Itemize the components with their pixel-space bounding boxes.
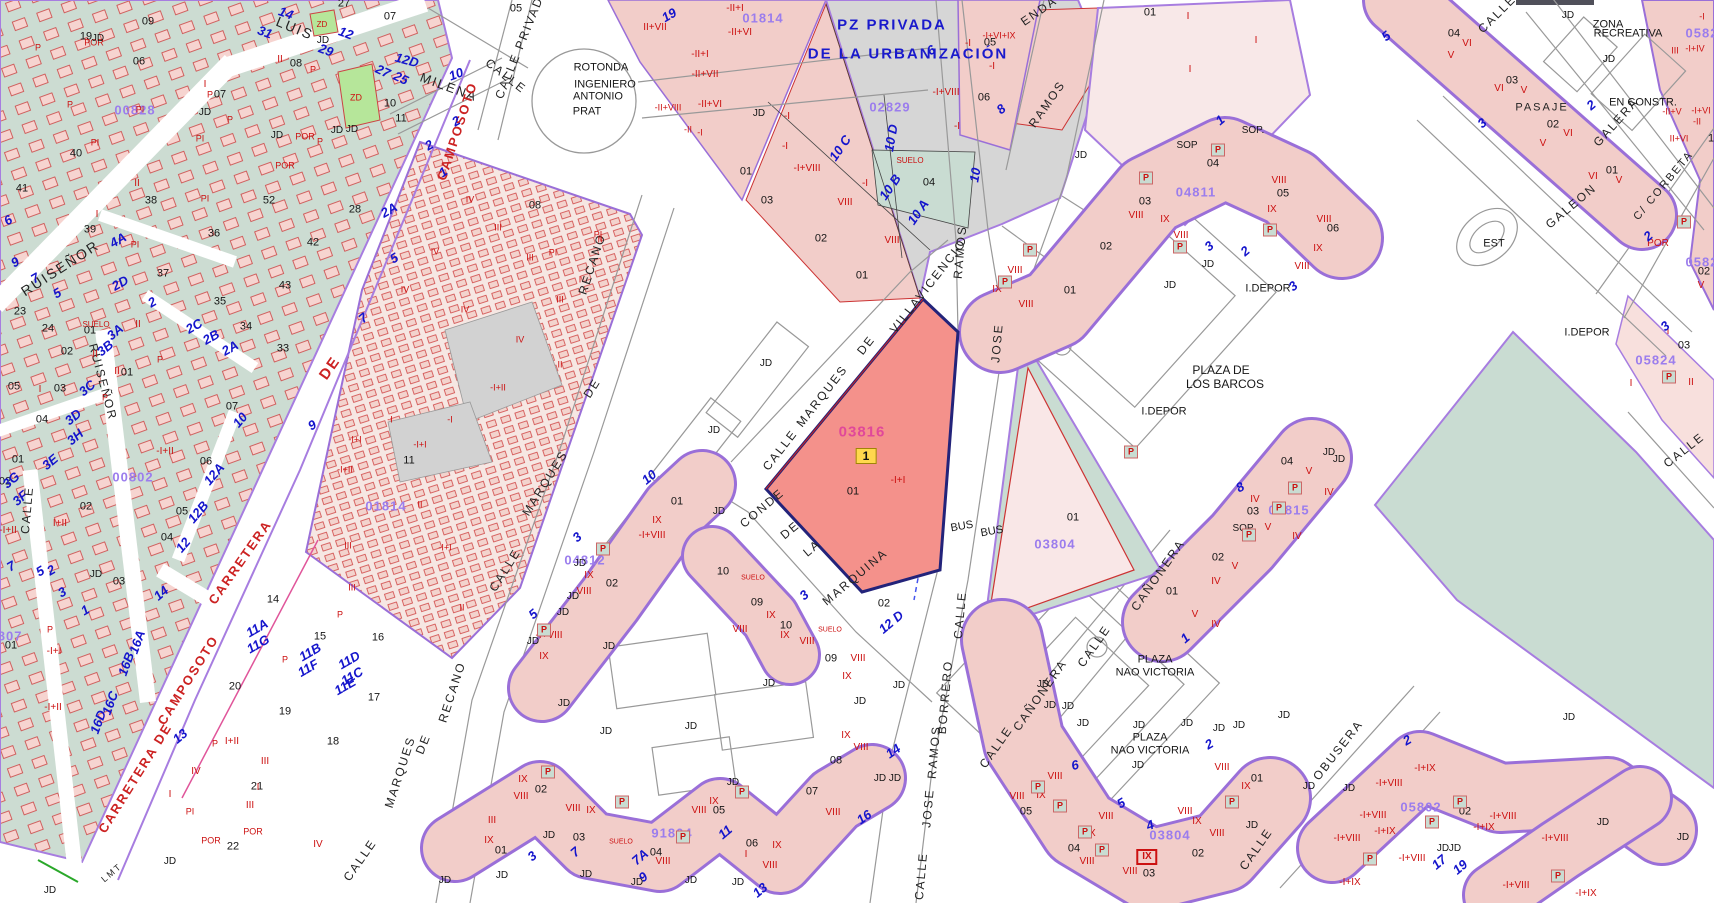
zd-green-parcel-small	[310, 10, 338, 36]
ne-corner-block	[1642, 0, 1714, 310]
cadastral-map[interactable]: LUISMILENACALLECALLE PRIVADARUISEÑORRUIS…	[0, 0, 1714, 903]
zd-green-parcel	[338, 64, 380, 128]
highlighted-parcel-03816	[766, 299, 958, 592]
rotonda-circle	[532, 49, 636, 153]
map-graphics	[0, 0, 1714, 903]
